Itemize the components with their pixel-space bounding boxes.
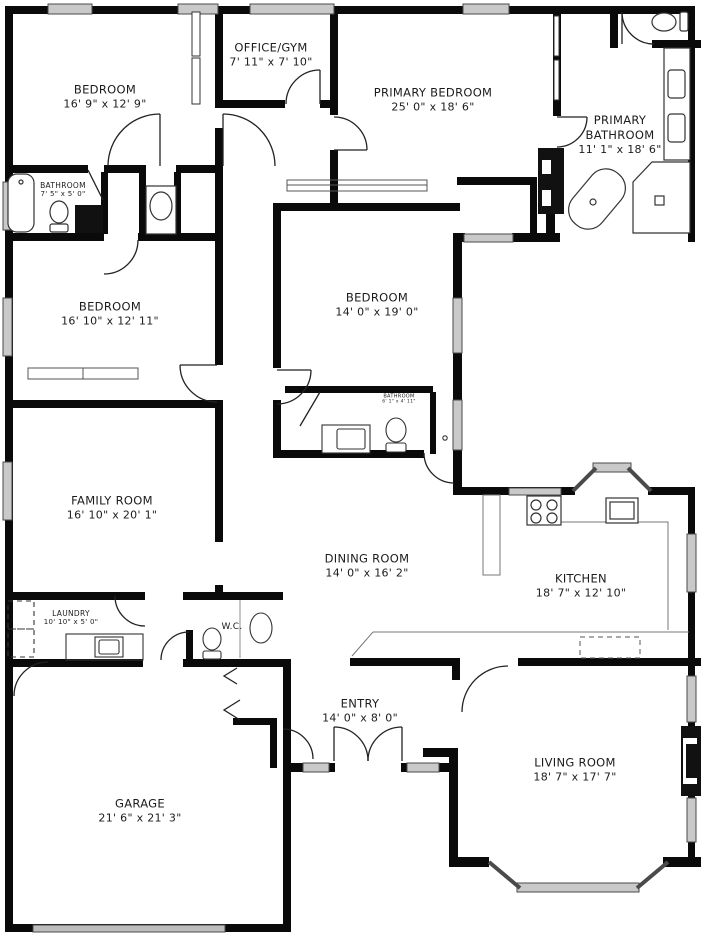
room-label-primary-bedroom: PRIMARY BEDROOM 25' 0" x 18' 6"	[374, 85, 493, 114]
garage-door	[33, 925, 225, 932]
room-dims: 16' 9" x 12' 9"	[63, 97, 146, 111]
room-name: BATHROOM	[40, 181, 86, 190]
room-name: BEDROOM	[61, 299, 159, 314]
sink-icon	[668, 114, 685, 142]
toilet-icon	[652, 13, 676, 31]
room-name: PRIMARY BATHROOM	[574, 113, 666, 143]
toilet-icon	[50, 201, 68, 223]
room-label-wc: W.C.	[221, 622, 242, 634]
room-label-primary-bathroom: PRIMARY BATHROOM 11' 1" x 18' 6"	[574, 113, 666, 157]
bathroom3-fixtures	[322, 418, 447, 453]
room-name: BEDROOM	[335, 290, 418, 305]
room-name: KITCHEN	[536, 571, 626, 586]
room-dims: 16' 10" x 20' 1"	[67, 508, 157, 522]
room-name: OFFICE/GYM	[229, 40, 312, 55]
room-name: PRIMARY BEDROOM	[374, 85, 493, 100]
room-label-bathroom-3: BATHROOM 6' 1" x 4' 11"	[382, 393, 416, 404]
room-label-laundry: LAUNDRY 10' 10" x 5' 0"	[44, 609, 99, 627]
room-label-bedroom-2: BEDROOM 16' 10" x 12' 11"	[61, 299, 159, 328]
room-label-family-room: FAMILY ROOM 16' 10" x 20' 1"	[67, 493, 157, 522]
room-name: BEDROOM	[63, 82, 146, 97]
room-name: LIVING ROOM	[533, 755, 616, 770]
room-dims: 25' 0" x 18' 6"	[374, 100, 493, 114]
room-label-living-room: LIVING ROOM 18' 7" x 17' 7"	[533, 755, 616, 784]
floor-plan: BEDROOM 16' 9" x 12' 9" OFFICE/GYM 7' 11…	[0, 0, 701, 941]
room-dims: 18' 7" x 12' 10"	[536, 586, 626, 600]
room-name: FAMILY ROOM	[67, 493, 157, 508]
room-dims: 21' 6" x 21' 3"	[98, 811, 181, 825]
room-dims: 10' 10" x 5' 0"	[44, 618, 99, 627]
room-dims: 7' 5" x 5' 0"	[40, 190, 86, 199]
room-label-dining-room: DINING ROOM 14' 0" x 16' 2"	[325, 551, 410, 580]
vanity-icon	[664, 48, 690, 160]
sink-icon	[250, 613, 272, 643]
bay-windows	[489, 468, 668, 888]
freestanding-tub-icon	[561, 162, 633, 237]
sink-icon	[150, 192, 172, 220]
room-name: GARAGE	[98, 796, 181, 811]
room-dims: 14' 0" x 19' 0"	[335, 305, 418, 319]
dishwasher-icon	[580, 637, 640, 658]
toilet-icon	[386, 418, 406, 442]
room-name: ENTRY	[322, 696, 398, 711]
shower-icon	[75, 205, 103, 233]
room-name: W.C.	[221, 622, 242, 634]
room-label-kitchen: KITCHEN 18' 7" x 12' 10"	[536, 571, 626, 600]
room-dims: 7' 11" x 7' 10"	[229, 55, 312, 69]
toilet-icon	[203, 628, 221, 650]
room-dims: 18' 7" x 17' 7"	[533, 770, 616, 784]
counter-icon	[66, 634, 143, 660]
bathroom1-fixtures	[8, 174, 176, 234]
room-label-bathroom-1: BATHROOM 7' 5" x 5' 0"	[40, 181, 86, 199]
room-label-garage: GARAGE 21' 6" x 21' 3"	[98, 796, 181, 825]
room-label-office-gym: OFFICE/GYM 7' 11" x 7' 10"	[229, 40, 312, 69]
room-dims: 16' 10" x 12' 11"	[61, 314, 159, 328]
sink-icon	[337, 429, 365, 449]
fireplace-icon	[681, 726, 701, 796]
sink-icon	[668, 70, 685, 98]
room-name: LAUNDRY	[44, 609, 99, 618]
room-label-entry: ENTRY 14' 0" x 8' 0"	[322, 696, 398, 725]
room-dims: 14' 0" x 16' 2"	[325, 566, 410, 580]
room-dims: 14' 0" x 8' 0"	[322, 711, 398, 725]
room-label-bedroom-1: BEDROOM 16' 9" x 12' 9"	[63, 82, 146, 111]
chimney-block	[538, 148, 564, 214]
room-dims: 6' 1" x 4' 11"	[382, 399, 416, 404]
room-dims: 11' 1" x 18' 6"	[574, 143, 666, 157]
kitchen-appliances	[527, 496, 638, 525]
room-name: DINING ROOM	[325, 551, 410, 566]
room-label-bedroom-3: BEDROOM 14' 0" x 19' 0"	[335, 290, 418, 319]
